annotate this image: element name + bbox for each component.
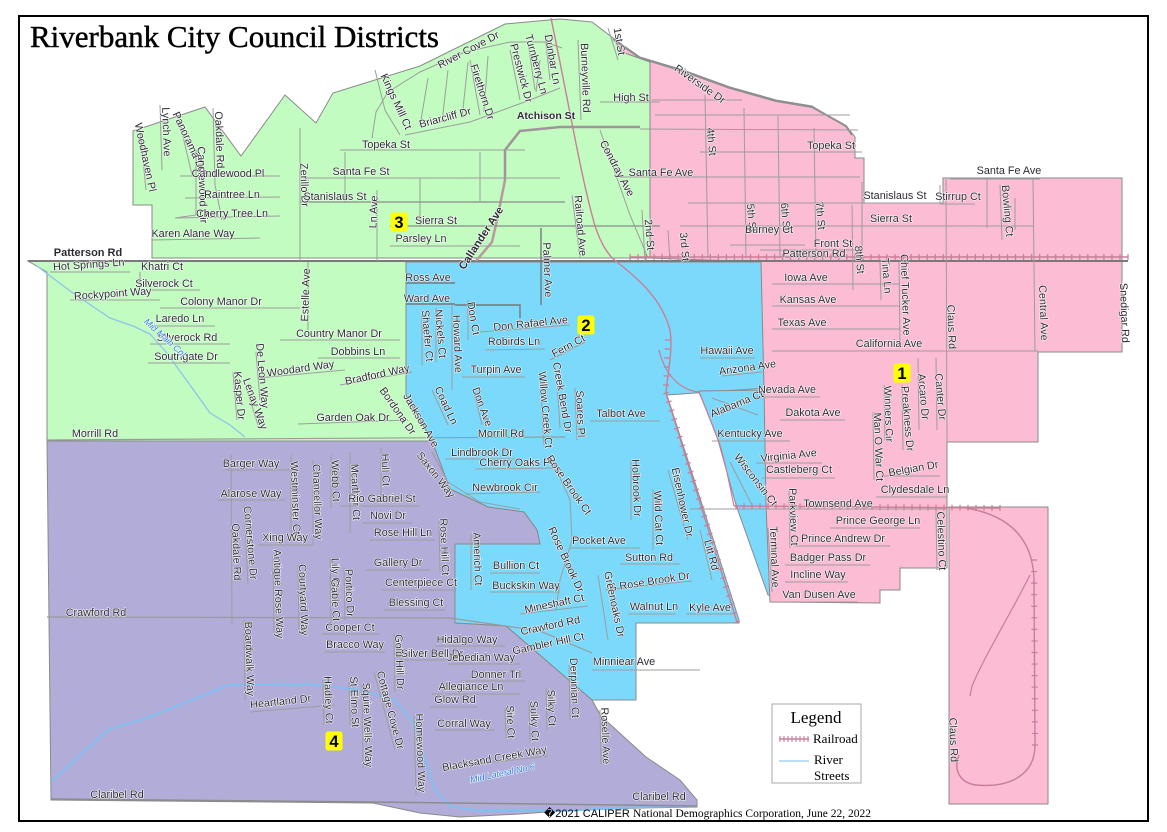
svg-text:Kansas Ave: Kansas Ave — [780, 294, 837, 306]
svg-text:Ln Ave: Ln Ave — [367, 195, 380, 228]
svg-text:4: 4 — [329, 733, 339, 751]
svg-text:Stanislaus St: Stanislaus St — [863, 190, 926, 202]
svg-text:Soares Pl: Soares Pl — [573, 390, 587, 437]
svg-text:Gold Hill Dr: Gold Hill Dr — [392, 634, 406, 690]
svg-text:Man O War Ct: Man O War Ct — [871, 412, 885, 481]
svg-text:Centerpiece Ct: Centerpiece Ct — [385, 577, 457, 589]
svg-text:Van Dusen Ave: Van Dusen Ave — [782, 589, 855, 601]
svg-text:National Demographics Corporat: National Demographics Corporation, June … — [633, 808, 871, 820]
svg-text:Riverbank City Council Distric: Riverbank City Council Districts — [30, 19, 439, 54]
svg-text:Sulky Ct: Sulky Ct — [527, 701, 540, 742]
svg-text:3: 3 — [394, 214, 403, 232]
svg-text:Stanislaus St: Stanislaus St — [303, 191, 366, 203]
svg-text:Americh Ct: Americh Ct — [470, 532, 484, 586]
svg-text:Xing Way: Xing Way — [262, 532, 308, 544]
svg-text:Topeka St: Topeka St — [362, 139, 410, 151]
svg-text:2: 2 — [581, 317, 590, 335]
svg-text:Howard Ave: Howard Ave — [450, 315, 464, 373]
svg-text:Kyle Ave: Kyle Ave — [689, 602, 731, 614]
svg-text:Colony Manor Dr: Colony Manor Dr — [180, 296, 262, 308]
svg-text:Barger Way: Barger Way — [223, 458, 280, 470]
svg-text:Celestino Ct: Celestino Ct — [934, 511, 948, 570]
svg-text:Hull Ct: Hull Ct — [378, 453, 391, 486]
svg-text:Rio Gabriel St: Rio Gabriel St — [348, 493, 415, 505]
svg-text:Buckskin Way: Buckskin Way — [492, 580, 560, 592]
svg-text:Novi Dr: Novi Dr — [370, 510, 406, 522]
svg-text:Railroad: Railroad — [813, 731, 858, 746]
svg-text:Santa Fe Ave: Santa Fe Ave — [629, 167, 694, 179]
svg-text:Roselle Ave: Roselle Ave — [598, 707, 612, 764]
svg-text:Jebediah Way: Jebediah Way — [447, 652, 516, 664]
svg-text:Snedigar Rd: Snedigar Rd — [1117, 283, 1131, 343]
svg-text:Topeka St: Topeka St — [807, 140, 855, 152]
svg-text:Parsley Ln: Parsley Ln — [395, 233, 446, 245]
svg-text:Cherry Tree Ln: Cherry Tree Ln — [196, 208, 268, 220]
svg-text:Incline Way: Incline Way — [790, 569, 846, 581]
svg-text:Minniear Ave: Minniear Ave — [593, 656, 655, 668]
svg-text:Atchison St: Atchison St — [517, 110, 576, 122]
svg-text:Hawaii Ave: Hawaii Ave — [700, 345, 753, 357]
svg-text:Streets: Streets — [814, 768, 849, 783]
svg-text:Donner Trl: Donner Trl — [471, 669, 521, 681]
svg-text:Rose Hill Ln: Rose Hill Ln — [374, 527, 432, 539]
svg-text:Crawford Rd: Crawford Rd — [66, 607, 127, 619]
svg-text:Oakdale Rd: Oakdale Rd — [229, 523, 243, 580]
svg-text:Hadley Ct: Hadley Ct — [321, 676, 335, 724]
svg-text:Gallery Dr: Gallery Dr — [374, 557, 423, 569]
svg-text:3rd St: 3rd St — [677, 232, 691, 262]
svg-text:Legend: Legend — [791, 708, 842, 727]
svg-text:Ward Ave: Ward Ave — [404, 293, 450, 305]
svg-text:Wild Cat Ct: Wild Cat Ct — [651, 490, 665, 545]
svg-text:Parkview Ct: Parkview Ct — [786, 488, 800, 546]
svg-text:Estelle Ave: Estelle Ave — [299, 268, 313, 322]
svg-text:Dakota Ave: Dakota Ave — [785, 407, 840, 419]
svg-text:Raintree Ln: Raintree Ln — [204, 189, 260, 201]
svg-text:Sierra St: Sierra St — [415, 215, 457, 227]
svg-text:High St: High St — [613, 92, 648, 104]
svg-text:Iowa Ave: Iowa Ave — [784, 272, 828, 284]
svg-text:Hidalgo Way: Hidalgo Way — [437, 634, 498, 646]
svg-text:Corral Way: Corral Way — [437, 718, 491, 730]
svg-text:Castleberg Ct: Castleberg Ct — [766, 464, 832, 476]
svg-text:Mcarthur Ct: Mcarthur Ct — [348, 463, 362, 520]
svg-text:Webb Ct: Webb Ct — [328, 460, 341, 502]
svg-text:Robirds Ln: Robirds Ln — [488, 336, 540, 348]
svg-text:7th St: 7th St — [813, 201, 827, 230]
svg-text:Claribel Rd: Claribel Rd — [90, 789, 143, 801]
svg-text:Santa Fe Ave: Santa Fe Ave — [977, 165, 1042, 177]
svg-text:Terminal Ave: Terminal Ave — [767, 526, 781, 588]
svg-text:Badger Pass Dr: Badger Pass Dr — [790, 552, 867, 564]
svg-text:Country Manor Dr: Country Manor Dr — [296, 328, 382, 340]
svg-text:1: 1 — [897, 365, 906, 383]
svg-text:Nevada Ave: Nevada Ave — [758, 384, 816, 396]
svg-text:Allegiance Ln: Allegiance Ln — [439, 681, 504, 693]
svg-text:Prince George Ln: Prince George Ln — [836, 515, 921, 527]
svg-text:Oakdale Rd: Oakdale Rd — [212, 111, 226, 168]
svg-text:Claus Rd: Claus Rd — [944, 304, 958, 349]
svg-text:Blessing Ct: Blessing Ct — [389, 597, 444, 609]
svg-text:Dobbins Ln: Dobbins Ln — [331, 346, 386, 358]
svg-text:Central Ave: Central Ave — [1036, 285, 1050, 341]
svg-text:Newbrook Cir: Newbrook Cir — [472, 482, 538, 494]
svg-text:Silky Ct: Silky Ct — [544, 689, 557, 726]
svg-text:Khatri Ct: Khatri Ct — [141, 261, 183, 273]
svg-text:Portico Dr: Portico Dr — [342, 569, 356, 618]
svg-text:Morrill Rd: Morrill Rd — [72, 428, 118, 440]
svg-text:Derpinian Ct: Derpinian Ct — [567, 658, 581, 718]
svg-text:Texas Ave: Texas Ave — [777, 317, 826, 329]
svg-text:Prince Andrew Dr: Prince Andrew Dr — [801, 533, 885, 545]
svg-text:Courtyard Way: Courtyard Way — [296, 564, 311, 637]
svg-text:California Ave: California Ave — [856, 338, 922, 350]
svg-text:Patterson Rd: Patterson Rd — [782, 248, 845, 260]
svg-text:4th St: 4th St — [704, 127, 718, 156]
svg-text:Walnut Ln: Walnut Ln — [630, 601, 678, 613]
svg-text:Sire Ct: Sire Ct — [503, 705, 516, 738]
svg-text:Stirrup Ct: Stirrup Ct — [935, 191, 981, 203]
svg-text:Sierra St: Sierra St — [870, 213, 912, 225]
svg-text:Turpin Ave: Turpin Ave — [470, 364, 521, 376]
svg-text:Alarose Way: Alarose Way — [221, 488, 282, 500]
svg-text:Westminster Ct: Westminster Ct — [288, 461, 303, 535]
svg-text:Cooper Ct: Cooper Ct — [325, 622, 374, 634]
svg-text:Glow Rd: Glow Rd — [434, 694, 475, 706]
svg-text:Burney Ct: Burney Ct — [745, 224, 793, 236]
svg-text:Sutton Rd: Sutton Rd — [625, 552, 673, 564]
svg-text:St Elmo St: St Elmo St — [347, 676, 361, 727]
svg-text:Laredo Ln: Laredo Ln — [156, 313, 205, 325]
svg-text:Candlewood Pl: Candlewood Pl — [192, 168, 265, 180]
svg-text:Santa Fe St: Santa Fe St — [332, 166, 389, 178]
svg-text:Morrill Rd: Morrill Rd — [478, 428, 524, 440]
svg-text:Clydesdale Ln: Clydesdale Ln — [881, 484, 949, 496]
svg-text:Gable Ct: Gable Ct — [328, 578, 341, 621]
svg-text:Holbrook Dr: Holbrook Dr — [629, 459, 643, 517]
svg-text:Karen Alane Way: Karen Alane Way — [151, 228, 235, 240]
svg-text:8th St: 8th St — [852, 245, 866, 274]
svg-text:Claus Rd: Claus Rd — [946, 717, 960, 762]
svg-text:�2021 CALIPER: �2021 CALIPER — [544, 806, 630, 820]
svg-text:Garden Oak Dr: Garden Oak Dr — [316, 412, 390, 424]
svg-text:Kentucky Ave: Kentucky Ave — [717, 428, 782, 440]
svg-text:Claribel Rd: Claribel Rd — [632, 791, 685, 803]
svg-text:Rose Hill Ct: Rose Hill Ct — [437, 518, 451, 575]
svg-text:Bullion Ct: Bullion Ct — [493, 560, 539, 572]
svg-text:Pocket Ave: Pocket Ave — [572, 535, 626, 547]
svg-text:Talbot Ave: Talbot Ave — [596, 408, 646, 420]
svg-text:Bracco Way: Bracco Way — [326, 639, 384, 651]
svg-text:Palmer Ave: Palmer Ave — [540, 242, 554, 297]
svg-text:Ross Ave: Ross Ave — [405, 272, 450, 284]
svg-text:River: River — [814, 752, 844, 767]
svg-text:Townsend Ave: Townsend Ave — [803, 498, 872, 510]
svg-text:Burneyville Rd: Burneyville Rd — [578, 43, 592, 113]
svg-text:Cherry Oaks Pl: Cherry Oaks Pl — [479, 457, 552, 469]
